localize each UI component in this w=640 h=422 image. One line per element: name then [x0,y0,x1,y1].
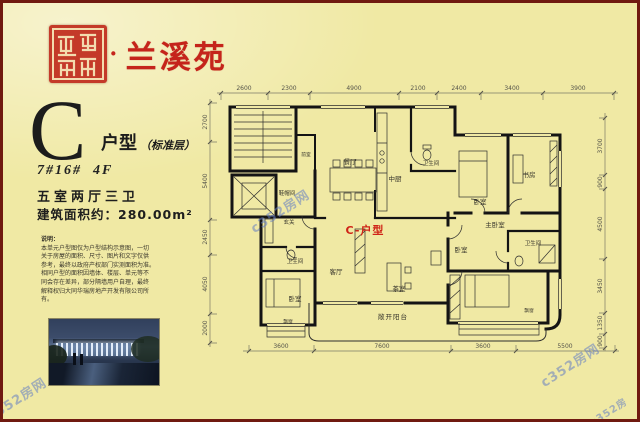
disclaimer-line: 本单元户型图仅为户型结构示意图，一切 [41,245,157,254]
flyer-page: · 兰溪苑 C 户型（标准层） 7#16# 4F 五室两厅三卫 建筑面积约：28… [0,0,640,422]
dim-left-2: 2450 [202,229,209,244]
dimension-ticks [208,91,617,353]
disclaimer-line: 关于房屋的面积、尺寸、图片和文字仅供 [41,253,157,262]
bay-window-right-label: 飘窗 [524,307,534,314]
photo-figure [73,353,76,365]
watermark: c352房网 [587,391,640,422]
photo-ground [49,363,159,385]
dimension-lines [210,93,619,351]
dim-right-5: 900 [597,335,604,347]
bathroom-top-label: 卫生间 [423,159,440,167]
disclaimer-line: 相同户型的面积因墙体、楼层、单元等不 [41,270,157,279]
dim-bottom-2: 3600 [475,343,490,350]
bedroom-left-label: 卧室 [289,294,303,303]
dim-top-0: 2600 [236,85,251,92]
elevator [234,177,274,215]
plan-title: C-户型 [346,223,385,237]
room-labels: 餐厅 中厨 卫生间 卧室 书房 主卧室 卫生间 鞋帽间 玄关 卫生间 卧室 飘窗… [279,151,542,325]
master-bedroom-label: 主卧室 [485,220,505,229]
living-room-label: 客厅 [330,267,344,276]
dim-bottom-0: 3600 [273,343,288,350]
unit-type: 户型（标准层） [101,129,195,155]
dim-top-6: 3900 [570,85,585,92]
dim-right-4: 1350 [597,315,604,330]
dim-left-3: 4050 [202,276,209,291]
dim-right-1: 900 [597,176,604,188]
dim-left-1: 5400 [202,173,209,188]
dim-top-1: 2300 [281,85,296,92]
dim-top-5: 3400 [504,85,519,92]
unit-type-label: 户型 [101,133,137,153]
master-bathroom-label: 卫生间 [525,239,542,247]
bedroom-right-label: 卧室 [455,245,469,254]
disclaimer: 说明： 本单元户型图仅为户型结构示意图，一切 关于房屋的面积、尺寸、图片和文字仅… [41,236,157,305]
kitchen-label: 中厨 [389,174,403,183]
dim-top-3: 2100 [410,85,425,92]
bedroom-upper-label: 卧室 [474,197,488,206]
floor-note: （标准层） [140,140,195,152]
staircase [234,111,292,163]
foyer-label: 玄关 [283,218,295,226]
dim-left-0: 2700 [202,114,209,129]
dim-bottom-1: 7600 [374,343,389,350]
photo-figure [80,354,83,365]
dim-left-4: 2000 [202,320,209,335]
cloakroom-label: 鞋帽间 [279,189,296,197]
lobby-label: 前室 [301,151,311,158]
walls [230,107,560,329]
photo-tree [131,336,159,362]
dim-right-0: 3700 [597,138,604,153]
dim-bottom-3: 5500 [557,343,572,350]
dim-right-3: 3450 [597,278,604,293]
dim-top-2: 4900 [346,85,361,92]
disclaimer-line: 同会存在差异，部分隔墙用户自理，最终 [41,279,157,288]
brand-name-text: 兰溪苑 [126,32,228,77]
dim-top-4: 2400 [451,85,466,92]
tea-room-label: 茶室 [393,284,407,293]
dining-room-label: 餐厅 [344,157,358,166]
balcony-label: 敞开阳台 [378,312,408,321]
building-number: 7#16# 4F [37,163,113,179]
watermark: c352房网 [0,372,50,422]
bay-window-left-label: 飘窗 [283,318,293,325]
dim-right-2: 4500 [597,216,604,231]
floor-plan: 2600 2300 4900 2100 2400 3400 3900 3600 … [196,71,632,373]
brand-seal-icon [49,25,107,83]
project-photo [49,319,159,385]
disclaimer-line: 有。 [41,296,157,305]
rooms-summary: 五室两厅三卫 [37,186,139,205]
study-label: 书房 [523,170,536,179]
bathroom-lower-label: 卫生间 [287,257,304,265]
disclaimer-title: 说明： [41,236,157,245]
unit-letter: C [29,87,86,173]
area-line: 建筑面积约：280.00m² [37,204,193,223]
photo-lit-facade [56,343,140,356]
brand-separator: · [109,39,118,69]
disclaimer-line: 解释权归大同华瑞房地产开发有限公司所 [41,288,157,297]
